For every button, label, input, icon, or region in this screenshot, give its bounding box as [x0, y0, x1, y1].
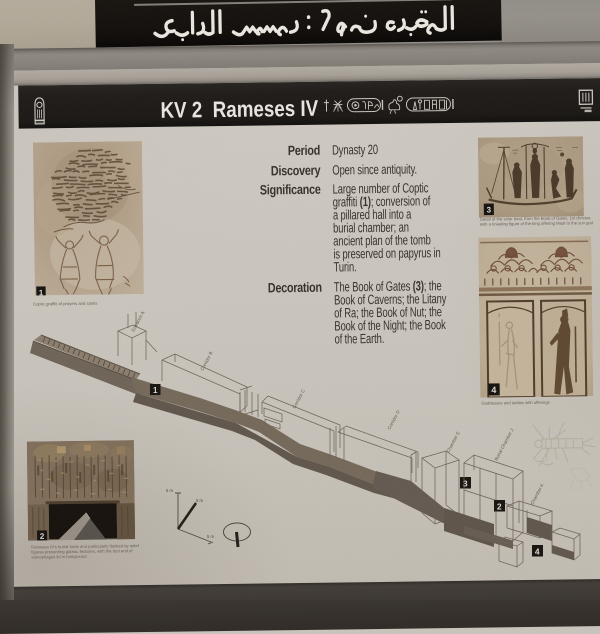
- svg-text:Entrance A: Entrance A: [130, 309, 145, 332]
- svg-text:2: 2: [497, 501, 502, 511]
- svg-text:Corridor C: Corridor C: [291, 388, 306, 410]
- svg-text:4: 4: [535, 546, 540, 556]
- svg-text:5 m: 5 m: [166, 488, 173, 493]
- svg-text:5 m: 5 m: [196, 498, 203, 503]
- svg-text:Chamber K: Chamber K: [529, 482, 545, 506]
- svg-text:5 m: 5 m: [207, 534, 214, 539]
- svg-text:Chamber E: Chamber E: [445, 431, 460, 454]
- svg-text:Burial Chamber J: Burial Chamber J: [493, 428, 514, 462]
- svg-text:Corridor D: Corridor D: [386, 409, 401, 431]
- svg-text:1: 1: [153, 386, 158, 395]
